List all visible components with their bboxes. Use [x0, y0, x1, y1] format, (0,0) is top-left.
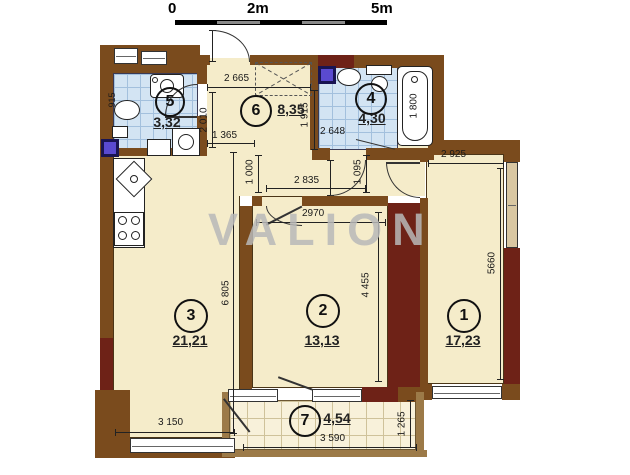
balcony-wall [222, 450, 427, 457]
wall [504, 140, 520, 162]
window [228, 389, 278, 402]
dimension-line [233, 152, 234, 434]
room-7-area: 4,54 [316, 410, 358, 426]
balcony-wall [416, 392, 424, 454]
window [312, 389, 362, 402]
entrance-door-arc [212, 30, 250, 62]
room-2-number: 2 [306, 294, 340, 328]
drain-icon [130, 175, 138, 183]
room-5-area: 3,32 [144, 114, 190, 130]
wall [362, 387, 398, 402]
sink-icon [337, 68, 361, 86]
wall [388, 203, 420, 390]
burner-icon [118, 231, 127, 240]
dimension-label: 2 010 [199, 107, 210, 132]
dimension-line [366, 155, 367, 193]
vent-shaft-icon [101, 139, 119, 157]
dimension-line [207, 143, 255, 144]
wall [504, 248, 520, 385]
room-1-area: 17,23 [438, 332, 488, 348]
dimension-line [266, 188, 366, 189]
scale-label-0: 0 [168, 0, 176, 17]
dimension-label: 1 000 [245, 159, 256, 184]
room-3-area: 21,21 [165, 332, 215, 348]
dimension-label: 915 [107, 92, 117, 107]
room-4-area: 4,30 [350, 110, 394, 126]
wall [100, 338, 113, 390]
burner-icon [118, 216, 127, 225]
dimension-line [410, 400, 411, 448]
cabinet-icon [147, 139, 171, 156]
wall [95, 390, 130, 458]
room-6-area: 8,35 [270, 101, 312, 117]
cabinet-icon [112, 126, 128, 138]
dimension-line [378, 212, 379, 382]
dimension-label: 3 590 [320, 433, 345, 444]
scale-bar-segment [302, 21, 345, 24]
window [130, 438, 235, 453]
sink-icon [114, 100, 140, 120]
room-1-number: 1 [447, 299, 481, 333]
dimension-label: 2 835 [294, 175, 319, 186]
wall [252, 196, 262, 206]
window [506, 162, 518, 248]
dimension-label: 1 095 [353, 159, 364, 184]
scale-bar-segment [217, 21, 260, 24]
washing-machine-door-icon [178, 134, 194, 150]
dimension-label: 1 265 [397, 411, 408, 436]
wall [502, 384, 520, 400]
wall [302, 196, 388, 206]
dimension-line [258, 155, 259, 193]
scale-label-2m: 2m [247, 0, 269, 17]
dimension-line [314, 90, 315, 150]
dimension-label: 2970 [302, 208, 324, 219]
burner-icon [131, 216, 140, 225]
dimension-line [207, 87, 311, 88]
dimension-label: 5660 [487, 252, 498, 274]
dimension-label: 3 150 [158, 417, 183, 428]
shaft-window [141, 51, 167, 65]
room-5-number: 5 [155, 87, 185, 117]
wall [240, 206, 252, 390]
dimension-label: 6 805 [221, 280, 232, 305]
knob-icon [152, 77, 158, 83]
dimension-label: 4 455 [361, 272, 372, 297]
scale-bar [175, 20, 387, 25]
shaft-window [114, 48, 138, 64]
dimension-label: 2 925 [441, 149, 466, 160]
room-3-number: 3 [174, 299, 208, 333]
dimension-label: 2 665 [224, 73, 249, 84]
room-2-area: 13,13 [297, 332, 347, 348]
burner-icon [131, 231, 140, 240]
dimension-line [256, 222, 386, 223]
dimension-label: 1 800 [409, 93, 420, 118]
dimension-line [428, 163, 504, 164]
dimension-line [243, 447, 417, 448]
wall [200, 55, 210, 65]
dimension-label: 2 648 [320, 126, 345, 137]
vent-shaft-icon [318, 66, 336, 84]
wall [420, 150, 428, 162]
drain-icon [411, 76, 418, 83]
dimension-line [115, 432, 235, 433]
floor-plan-image: 0 2m 5m [0, 0, 630, 475]
dimension-line [500, 168, 501, 380]
room-6-number: 6 [240, 95, 272, 127]
wardrobe-icon [255, 62, 312, 96]
wall [420, 198, 428, 390]
dimension-label: 1 365 [212, 130, 237, 141]
toilet-tank-icon [366, 65, 392, 75]
window [432, 386, 502, 399]
scale-label-5m: 5m [371, 0, 393, 17]
